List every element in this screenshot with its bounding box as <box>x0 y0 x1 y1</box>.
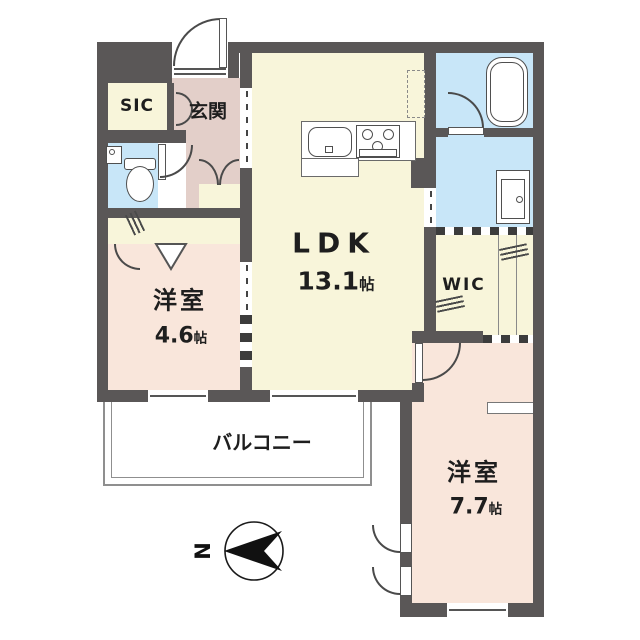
compass: N <box>190 514 300 590</box>
bedroom77-door-leaf <box>415 343 423 383</box>
size-number: 4.6 <box>155 324 194 349</box>
room-ldk <box>252 53 424 390</box>
washing-machine-knob <box>516 196 523 203</box>
wall-segment <box>167 83 174 130</box>
sliding-door-bedroom46-ldk-2 <box>240 315 252 367</box>
toilet-hand-basin-tap <box>109 149 115 155</box>
wall-segment <box>412 331 483 343</box>
toilet-hand-basin <box>106 146 122 164</box>
wall-segment <box>400 553 412 566</box>
kitchen-counter-ext <box>301 158 359 177</box>
kitchen-sink-drain <box>325 146 333 153</box>
hall-storage <box>199 184 240 208</box>
entrance-door-leaf <box>219 18 227 68</box>
wall-segment <box>400 603 447 617</box>
room-size-ldk: 13.1帖 <box>297 267 374 296</box>
sliding-door-washroom-wic <box>436 227 533 235</box>
exterior-door-leaf <box>400 523 412 553</box>
wall-segment <box>97 42 108 402</box>
size-number: 13.1 <box>297 267 359 296</box>
room-label-bedroom46: 洋室 <box>153 281 207 316</box>
wall-segment <box>108 130 186 143</box>
wall-segment <box>228 42 239 78</box>
size-unit: 帖 <box>489 502 503 518</box>
bathtub-inner <box>490 62 524 122</box>
room-label-entrance: 玄関 <box>189 97 227 124</box>
sliding-door-wic-bedroom77 <box>483 335 533 343</box>
room-label-sic: SIC <box>120 96 154 116</box>
wall-segment <box>97 390 148 402</box>
exterior-door-leaf <box>400 566 412 596</box>
size-number: 7.7 <box>450 495 489 520</box>
room-size-bedroom77: 7.7帖 <box>450 495 503 520</box>
wall-segment <box>412 383 424 402</box>
window-ldk <box>270 390 358 402</box>
size-unit: 帖 <box>359 276 375 294</box>
closet46-folding-door-icon <box>154 242 188 272</box>
stove-grill <box>359 149 397 157</box>
room-label-bedroom77: 洋室 <box>447 453 501 488</box>
sliding-door-hall-ldk <box>240 88 252 168</box>
wall-segment <box>240 168 252 262</box>
window-bedroom46 <box>148 390 208 402</box>
stove-burner <box>383 129 394 140</box>
wall-segment <box>400 390 412 523</box>
wall-segment <box>424 227 436 343</box>
exterior-door-arc <box>372 525 400 553</box>
wall-segment <box>240 367 252 390</box>
sliding-door-ldk-washroom <box>424 188 436 227</box>
floorplan: LDK 13.1帖 洋室 4.6帖 洋室 7.7帖 WIC SIC 玄関 バルコ… <box>0 0 640 640</box>
pipe-space <box>487 402 533 414</box>
wall-segment <box>508 603 544 617</box>
room-label-wic: WIC <box>442 275 486 295</box>
wall-segment <box>228 42 544 53</box>
window-bedroom77 <box>447 603 508 617</box>
room-label-balcony: バルコニー <box>212 427 312 456</box>
size-unit: 帖 <box>194 331 208 347</box>
wall-segment <box>484 128 533 137</box>
entrance-door-arc <box>173 18 221 66</box>
room-label-ldk: LDK <box>292 227 376 260</box>
wall-segment <box>533 42 544 617</box>
exterior-door-arc <box>372 567 400 595</box>
sliding-door-bedroom46-ldk <box>240 262 252 313</box>
bathroom-door-leaf <box>448 127 484 135</box>
wall-segment <box>108 53 172 83</box>
wall-segment <box>411 158 436 188</box>
room-size-bedroom46: 4.6帖 <box>155 324 208 349</box>
wall-segment <box>436 128 448 137</box>
wall-segment <box>208 390 270 402</box>
wall-segment <box>240 53 252 88</box>
compass-north-label: N <box>191 542 215 560</box>
stove-burner <box>362 129 373 140</box>
refrigerator-space <box>407 70 425 118</box>
toilet-bowl <box>126 166 154 202</box>
